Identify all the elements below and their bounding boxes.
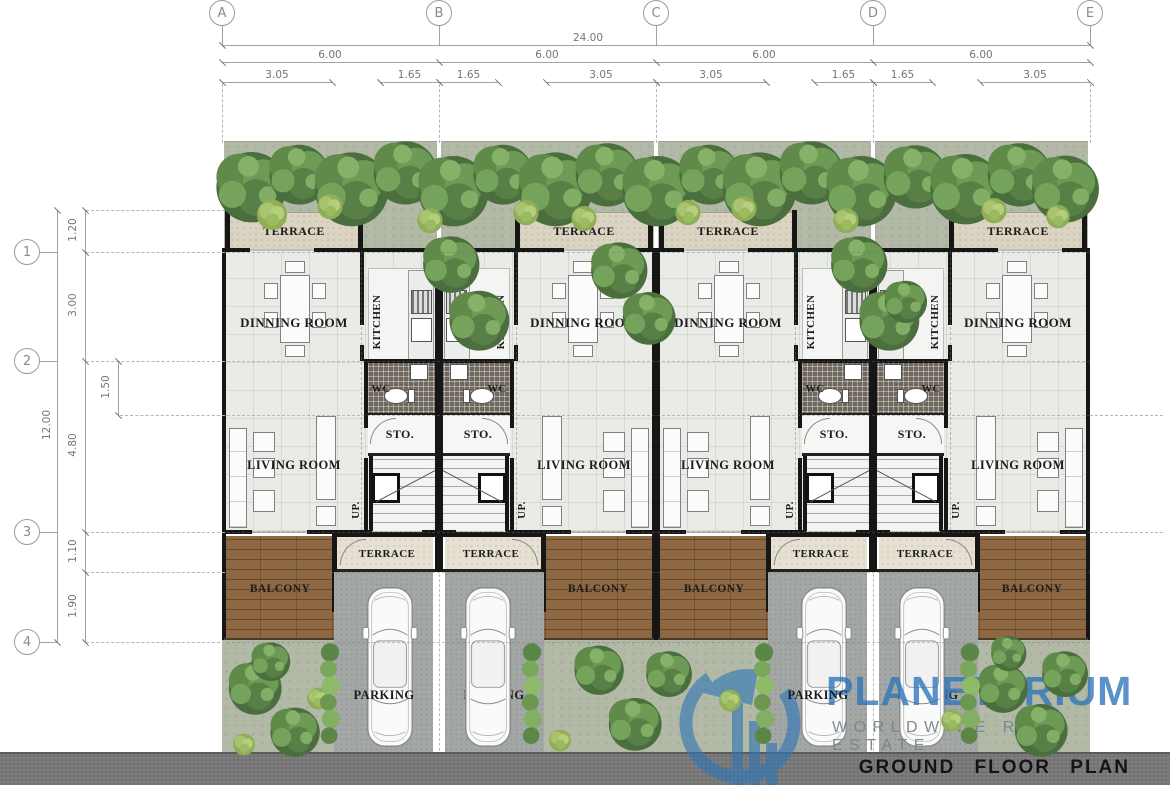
dim-line <box>222 45 1090 46</box>
dim-line <box>656 82 766 83</box>
dining-table <box>1002 275 1032 343</box>
dim-sub-width: 3.05 <box>255 69 299 81</box>
chair <box>986 283 1000 299</box>
terrace-wall-right <box>515 210 520 250</box>
terrace-wall-right <box>358 210 363 250</box>
armchair <box>253 432 275 452</box>
bubble-stem <box>222 26 223 45</box>
living-label: LIVING ROOM <box>666 458 790 472</box>
up-label: UP. <box>514 470 530 550</box>
grid-leader <box>439 84 440 143</box>
dim-sub-width: 1.65 <box>447 69 491 81</box>
toilet-tank <box>408 389 415 403</box>
dim-total-width: 24.00 <box>560 32 616 44</box>
floor-plan: TERRACE KITCHEN DINNING ROOM WC STO. UP.… <box>222 140 1090 752</box>
front-door <box>998 249 1062 251</box>
kitchen-label: KITCHEN <box>493 282 509 362</box>
balcony-label: BALCONY <box>986 582 1078 595</box>
rear-garden <box>544 640 656 752</box>
parking <box>879 572 978 752</box>
storage-label: STO. <box>372 428 428 441</box>
dim-sub-width: 1.65 <box>822 69 866 81</box>
parking-label: PARKING <box>344 689 424 702</box>
stove <box>446 290 467 314</box>
dim-sub-width: 3.05 <box>1013 69 1057 81</box>
sofa <box>663 428 681 528</box>
terrace-wall-left <box>648 210 653 250</box>
side-table <box>976 506 996 526</box>
front-wall <box>873 248 998 252</box>
coffee-table <box>687 490 709 512</box>
dim-line <box>980 82 1090 83</box>
chair <box>285 345 305 357</box>
sto-bottom-wall <box>802 453 869 456</box>
balcony-label: BALCONY <box>234 582 326 595</box>
dim-line <box>814 82 873 83</box>
stair-landing <box>806 473 834 503</box>
row-leader <box>1090 532 1163 533</box>
dim-line <box>85 210 86 642</box>
sofa <box>229 428 247 528</box>
rear-terrace-label: TERRACE <box>781 547 861 560</box>
terrace-label: TERRACE <box>966 224 1070 238</box>
sofa <box>1065 428 1083 528</box>
hall-wall <box>944 361 948 428</box>
front-fence <box>875 141 1088 142</box>
row-leader <box>86 532 225 533</box>
rear-garden <box>656 640 768 752</box>
parking <box>768 572 867 752</box>
armchair <box>603 432 625 452</box>
balcony-door <box>1005 531 1060 533</box>
side-wall <box>222 248 226 532</box>
dim-line <box>118 361 119 415</box>
hall-wall <box>798 458 802 532</box>
dim-line <box>546 82 656 83</box>
armchair <box>1037 432 1059 452</box>
dim-row-height: 1.10 <box>67 529 79 573</box>
wc-label: WC <box>918 383 944 395</box>
sto-bottom-wall <box>443 453 510 456</box>
side-table <box>542 506 562 526</box>
dim-row-height: 3.00 <box>67 283 79 327</box>
wc-bottom-wall <box>443 413 510 415</box>
chair <box>573 261 593 273</box>
storage-label: STO. <box>884 428 940 441</box>
stair-landing <box>912 473 940 503</box>
balcony-side-wall <box>656 532 660 640</box>
kitchen-counter <box>408 270 434 363</box>
up-label: UP. <box>782 470 798 550</box>
terrace-wall-right <box>792 210 797 250</box>
chair <box>719 345 739 357</box>
living-label: LIVING ROOM <box>956 458 1080 472</box>
balcony-door <box>252 531 307 533</box>
chair <box>285 261 305 273</box>
dim-sub-width: 3.05 <box>689 69 733 81</box>
wc-sink <box>884 364 902 380</box>
dim-sub-width: 3.05 <box>579 69 623 81</box>
balcony-side-wall <box>222 532 226 640</box>
terrace-wall-right <box>949 210 954 250</box>
dim-sub-width: 1.65 <box>388 69 432 81</box>
rear-garden <box>222 640 334 752</box>
dim-row-height: 1.90 <box>67 584 79 628</box>
parking-label: PARKING <box>888 689 968 702</box>
chair <box>552 283 566 299</box>
row-leader <box>86 252 225 253</box>
driveway-divider <box>439 574 440 785</box>
coffee-table <box>603 490 625 512</box>
grid-bubble-col: D <box>860 0 886 26</box>
wc-sink <box>450 364 468 380</box>
stair-landing <box>478 473 506 503</box>
grid-bubble-col: A <box>209 0 235 26</box>
up-label: UP. <box>348 470 364 550</box>
stove <box>845 290 866 314</box>
rear-garden <box>978 640 1090 752</box>
party-wall <box>873 248 877 572</box>
dining-label: DINNING ROOM <box>517 316 651 330</box>
bubble-stem <box>873 26 874 45</box>
balcony-label: BALCONY <box>552 582 644 595</box>
grid-bubble-row: 4 <box>14 629 40 655</box>
party-wall <box>439 248 443 572</box>
kitchen-sink <box>880 318 901 342</box>
front-door <box>684 249 748 251</box>
side-wall <box>1086 248 1090 532</box>
rear-terrace-label: TERRACE <box>885 547 965 560</box>
chair <box>600 283 614 299</box>
stair-landing <box>372 473 400 503</box>
dim-line <box>380 82 439 83</box>
grid-bubble-col: C <box>643 0 669 26</box>
front-wall <box>314 248 439 252</box>
chair <box>1007 345 1027 357</box>
front-wall <box>439 248 564 252</box>
wc-sink <box>410 364 428 380</box>
armchair <box>687 432 709 452</box>
terrace-wall-left <box>225 210 230 250</box>
kitchen-label: KITCHEN <box>369 282 385 362</box>
front-fence <box>441 141 654 142</box>
kitchen-sink <box>446 318 467 342</box>
toilet-tank <box>463 389 470 403</box>
sto-bottom-wall <box>877 453 944 456</box>
dim-line <box>873 82 932 83</box>
row-leader <box>86 642 225 643</box>
front-wall <box>222 248 250 252</box>
unit-2: TERRACE KITCHEN DINNING ROOM WC STO. UP.… <box>439 140 656 752</box>
toilet-tank <box>897 389 904 403</box>
rear-wall <box>222 530 252 534</box>
dim-line <box>439 82 498 83</box>
dim-unit-width: 6.00 <box>739 49 789 61</box>
dim-sub-width: 1.65 <box>881 69 925 81</box>
chair <box>698 283 712 299</box>
dim-row-height: 1.20 <box>67 208 79 252</box>
front-wall <box>656 248 684 252</box>
dining-table <box>568 275 598 343</box>
dim-unit-width: 6.00 <box>522 49 572 61</box>
wc-label: WC <box>368 383 394 395</box>
side-table <box>316 506 336 526</box>
chair <box>1007 261 1027 273</box>
chair <box>264 283 278 299</box>
chair <box>312 283 326 299</box>
balcony-label: BALCONY <box>668 582 760 595</box>
unit-1: TERRACE KITCHEN DINNING ROOM WC STO. UP.… <box>222 140 439 752</box>
row-leader <box>86 361 225 362</box>
balcony-door <box>571 531 626 533</box>
sofa <box>631 428 649 528</box>
stove <box>880 290 901 314</box>
wc-label: WC <box>802 383 828 395</box>
bubble-stem <box>40 642 57 643</box>
coffee-table <box>253 490 275 512</box>
coffee-table <box>1037 490 1059 512</box>
parking-label: PARKING <box>778 689 858 702</box>
dining-label: DINNING ROOM <box>661 316 795 330</box>
grid-bubble-col: B <box>426 0 452 26</box>
kitchen-counter <box>842 270 868 363</box>
grid-leader <box>873 84 874 143</box>
chair <box>1034 283 1048 299</box>
dim-line <box>57 210 58 642</box>
terrace-wall-left <box>1082 210 1087 250</box>
bubble-stem <box>40 532 57 533</box>
unit-4: TERRACE KITCHEN DINNING ROOM WC STO. UP.… <box>873 140 1090 752</box>
bubble-stem <box>656 26 657 45</box>
kitchen-counter <box>878 270 904 363</box>
unit-3: TERRACE KITCHEN DINNING ROOM WC STO. UP.… <box>656 140 873 752</box>
front-door <box>564 249 628 251</box>
living-label: LIVING ROOM <box>522 458 646 472</box>
front-wall <box>748 248 873 252</box>
dim-total-height: 12.00 <box>41 403 53 447</box>
chair <box>719 261 739 273</box>
kitchen-sink <box>845 318 866 342</box>
rear-terrace-label: TERRACE <box>451 547 531 560</box>
terrace-label: TERRACE <box>242 224 346 238</box>
kitchen-label: KITCHEN <box>927 282 943 362</box>
balcony-side-wall <box>1086 532 1090 640</box>
grid-bubble-row: 3 <box>14 519 40 545</box>
dining-table <box>280 275 310 343</box>
storage-label: STO. <box>450 428 506 441</box>
driveway-divider <box>873 574 874 785</box>
side-wall <box>656 248 660 532</box>
row-leader <box>86 210 225 211</box>
plan-title: GROUND FLOOR PLAN <box>859 757 1130 779</box>
wc-bottom-wall <box>368 413 435 415</box>
dim-row-height: 4.80 <box>67 423 79 467</box>
front-door <box>250 249 314 251</box>
terrace-label: TERRACE <box>676 224 780 238</box>
grid-bubble-col: E <box>1077 0 1103 26</box>
row-leader <box>1090 415 1163 416</box>
wc-bottom-wall <box>802 413 869 415</box>
row-leader <box>86 572 225 573</box>
rear-terrace-label: TERRACE <box>347 547 427 560</box>
side-table <box>750 506 770 526</box>
wc-bottom-wall <box>877 413 944 415</box>
row-leader <box>120 415 225 416</box>
grid-leader <box>1090 84 1091 143</box>
dim-line <box>222 82 332 83</box>
storage-label: STO. <box>806 428 862 441</box>
rear-wall <box>656 530 686 534</box>
grid-bubble-row: 1 <box>14 239 40 265</box>
chair <box>573 345 593 357</box>
toilet-tank <box>842 389 849 403</box>
dim-unit-width: 6.00 <box>305 49 355 61</box>
kitchen-label: KITCHEN <box>803 282 819 362</box>
bubble-stem <box>40 361 57 362</box>
bubble-stem <box>40 252 57 253</box>
hall-wall <box>510 361 514 428</box>
dining-table <box>714 275 744 343</box>
terrace-label: TERRACE <box>532 224 636 238</box>
bubble-stem <box>1090 26 1091 45</box>
balcony-door <box>686 531 741 533</box>
terrace-wall-left <box>659 210 664 250</box>
kitchen-sink <box>411 318 432 342</box>
front-fence <box>224 141 437 142</box>
grid-leader <box>656 84 657 143</box>
grid-leader <box>222 84 223 143</box>
floor-plan-drawing: GROUND FLOOR PLAN TERRACE KITCHEN DINNIN… <box>0 0 1170 785</box>
front-fence <box>658 141 871 142</box>
bubble-stem <box>439 26 440 45</box>
dim-row-height: 1.50 <box>100 365 112 409</box>
wc-label: WC <box>484 383 510 395</box>
sto-bottom-wall <box>368 453 435 456</box>
parking-label: PARKING <box>454 689 534 702</box>
dim-unit-width: 6.00 <box>956 49 1006 61</box>
dining-label: DINNING ROOM <box>227 316 361 330</box>
living-label: LIVING ROOM <box>232 458 356 472</box>
wc-sink <box>844 364 862 380</box>
parking <box>445 572 544 752</box>
hall-wall <box>364 458 368 532</box>
kitchen-counter <box>444 270 470 363</box>
parking <box>334 572 433 752</box>
stove <box>411 290 432 314</box>
grid-bubble-row: 2 <box>14 348 40 374</box>
chair <box>746 283 760 299</box>
up-label: UP. <box>948 470 964 550</box>
dining-label: DINNING ROOM <box>951 316 1085 330</box>
